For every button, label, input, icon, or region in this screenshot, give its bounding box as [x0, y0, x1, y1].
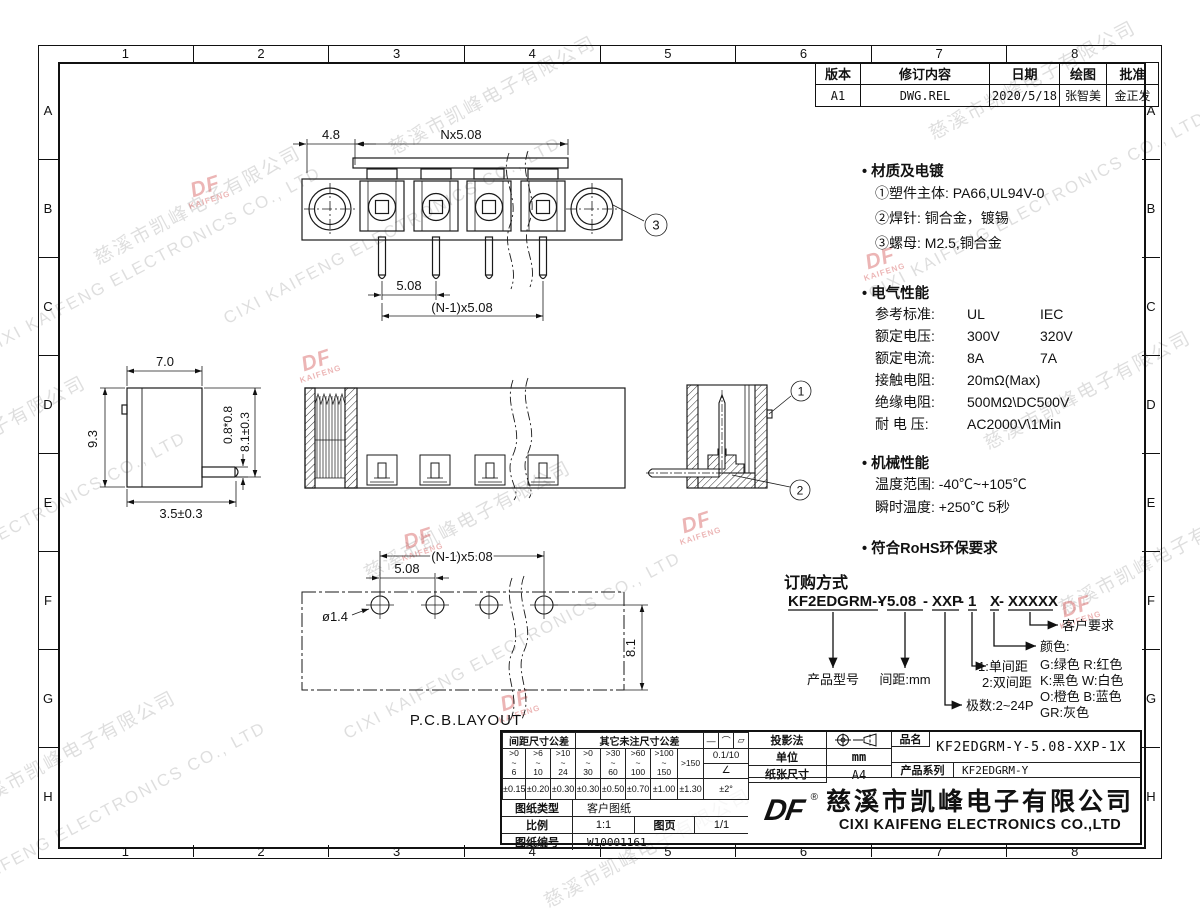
callout-1: 1 — [798, 385, 805, 399]
flatness-icon: ▱ — [734, 733, 748, 748]
pcb-layout-label: P.C.B.LAYOUT — [410, 712, 522, 729]
dim-5.08: 5.08 — [396, 278, 421, 293]
part-name-block: KF2EDGRM-Y-5.08-XXP-1X 品名 产品系列 KF2EDGRM-… — [892, 732, 1140, 777]
color-line: G:绿色 R:红色 — [1040, 657, 1122, 672]
label-row1: 1:单间距 — [978, 659, 1028, 674]
company-block: DF® 慈溪市凯峰电子有限公司 CIXI KAIFENG ELECTRONICS… — [748, 777, 1140, 843]
first-angle-projection-icon — [827, 732, 891, 749]
dim-nx5.08: Nx5.08 — [440, 127, 481, 142]
scale-value: 1:1 — [573, 817, 635, 833]
kaifeng-logo: DF® — [748, 794, 820, 828]
label-row2: 2:双间距 — [982, 675, 1032, 690]
specifications: 材质及电镀 ①塑件主体: PA66,UL94V-0 ②焊针: 铜合金，镀锡 ③螺… — [862, 160, 1154, 558]
projection-label: 投影法 — [748, 732, 827, 749]
unit-label: 单位 — [748, 749, 827, 766]
label-model: 产品型号 — [807, 672, 859, 687]
projection-unit-paper: 投影法 单位 mm 纸张尺寸 A4 — [748, 732, 892, 777]
svg-text:-: - — [959, 593, 964, 610]
dim-pcb-5.08: 5.08 — [394, 561, 419, 576]
dim-hole-dia: ø1.4 — [322, 609, 348, 624]
dim-7.0: 7.0 — [156, 355, 174, 369]
dim-pcb-8.1: 8.1 — [623, 639, 638, 657]
ordering-diagram: 订购方式 KF2EDGRM-Y - 5.08 - XXP - 1 X - XXX… — [778, 566, 1168, 752]
dim-8.1: 8.1±0.3 — [238, 412, 252, 452]
color-line: GR:灰色 — [1040, 705, 1089, 720]
material-section: 材质及电镀 ①塑件主体: PA66,UL94V-0 ②焊针: 铜合金，镀锡 ③螺… — [862, 160, 1154, 256]
dim-3.5: 3.5±0.3 — [159, 506, 202, 521]
page-label: 图页 — [635, 817, 695, 833]
elevation-view — [295, 370, 645, 510]
series-value: KF2EDGRM-Y — [954, 763, 1140, 777]
rohs-note: 符合RoHS环保要求 — [862, 537, 1154, 558]
pn-row: 1 — [968, 593, 976, 610]
material-title: 材质及电镀 — [862, 160, 1154, 181]
series-label: 产品系列 — [892, 763, 954, 777]
dim-0.8x0.8: 0.8*0.8 — [221, 406, 235, 444]
electrical-section: 电气性能 参考标准:ULIEC 额定电压:300V320V 额定电流:8A7A … — [862, 282, 1154, 435]
part-name-label: 品名 — [892, 732, 930, 747]
dim-9.3: 9.3 — [85, 430, 100, 448]
svg-text:-: - — [923, 593, 928, 610]
dim-n-1x5.08: (N-1)x5.08 — [431, 300, 492, 315]
label-color: 颜色: — [1040, 639, 1070, 654]
side-view: 7.0 9.3 0.8*0.8 8.1±0.3 3.5±0.3 — [85, 355, 315, 535]
company-name-cn: 慈溪市凯峰电子有限公司 — [820, 788, 1140, 817]
grid-letters-left: A B C D E F G H — [38, 62, 58, 845]
number-value: W10001161 — [573, 834, 748, 850]
svg-text:-: - — [999, 593, 1004, 610]
company-name-en: CIXI KAIFENG ELECTRONICS CO.,LTD — [820, 817, 1140, 833]
unit-value: mm — [827, 749, 891, 766]
mechanical-section: 机械性能 温度范围: -40℃~+105℃ 瞬时温度: +250℃ 5秒 — [862, 452, 1154, 519]
drawing-info-rows: 图纸类型 客户图纸 比例 1:1 图页 1/1 图纸编号 W10001161 — [502, 800, 748, 845]
page-value: 1/1 — [695, 817, 748, 833]
electrical-title: 电气性能 — [862, 282, 1154, 303]
angle-icon: ∠ — [704, 764, 748, 778]
color-line: K:黑色 W:白色 — [1040, 673, 1124, 688]
callout-2: 2 — [797, 484, 804, 498]
registered-mark: ® — [811, 792, 818, 803]
revision-table: 版本 修订内容 日期 绘图 批准 A1 DWG.REL 2020/5/18 张智… — [815, 62, 1159, 107]
section-view: 1 2 — [640, 365, 820, 510]
straightness-icon: — — [704, 733, 719, 748]
callout-3: 3 — [652, 218, 659, 233]
number-label: 图纸编号 — [502, 834, 573, 850]
pn-pitch: 5.08 — [887, 593, 916, 610]
svg-text:-: - — [878, 593, 883, 610]
type-value: 客户图纸 — [573, 800, 748, 816]
scale-label: 比例 — [502, 817, 573, 833]
label-pitch: 间距:mm — [879, 672, 930, 687]
label-poles: 极数:2~24P — [966, 698, 1034, 713]
pn-poles: XXP — [932, 593, 962, 610]
title-block: 间距尺寸公差 其它未注尺寸公差 — ⌒ ▱ >0 ~ 6 >6 ~ 10 >10… — [500, 730, 1142, 845]
dim-4.8: 4.8 — [322, 127, 340, 142]
arc-icon: ⌒ — [719, 733, 734, 748]
pn-custom: XXXXX — [1008, 593, 1058, 610]
color-line: O:橙色 B:蓝色 — [1040, 689, 1122, 704]
pcb-layout-view: 5.08 (N-1)x5.08 8.1 ø1.4 P.C.B.LAYOUT — [290, 545, 690, 735]
front-view: 4.8 Nx5.08 5.08 (N-1)x5.08 3 — [280, 125, 700, 340]
type-label: 图纸类型 — [502, 800, 573, 816]
ordering-title: 订购方式 — [784, 573, 848, 592]
mechanical-title: 机械性能 — [862, 452, 1154, 473]
tolerance-table: 间距尺寸公差 其它未注尺寸公差 — ⌒ ▱ >0 ~ 6 >6 ~ 10 >10… — [502, 732, 749, 800]
drawing-sheet: 慈溪市凯峰电子有限公司 CIXI KAIFENG ELECTRONICS CO.… — [0, 0, 1200, 910]
label-custom: 客户要求 — [1062, 618, 1114, 633]
grid-numbers-top: 1 2 3 4 5 6 7 8 — [58, 45, 1142, 62]
dim-pcb-span: (N-1)x5.08 — [431, 549, 492, 564]
pn-base: KF2EDGRM-Y — [788, 593, 887, 610]
